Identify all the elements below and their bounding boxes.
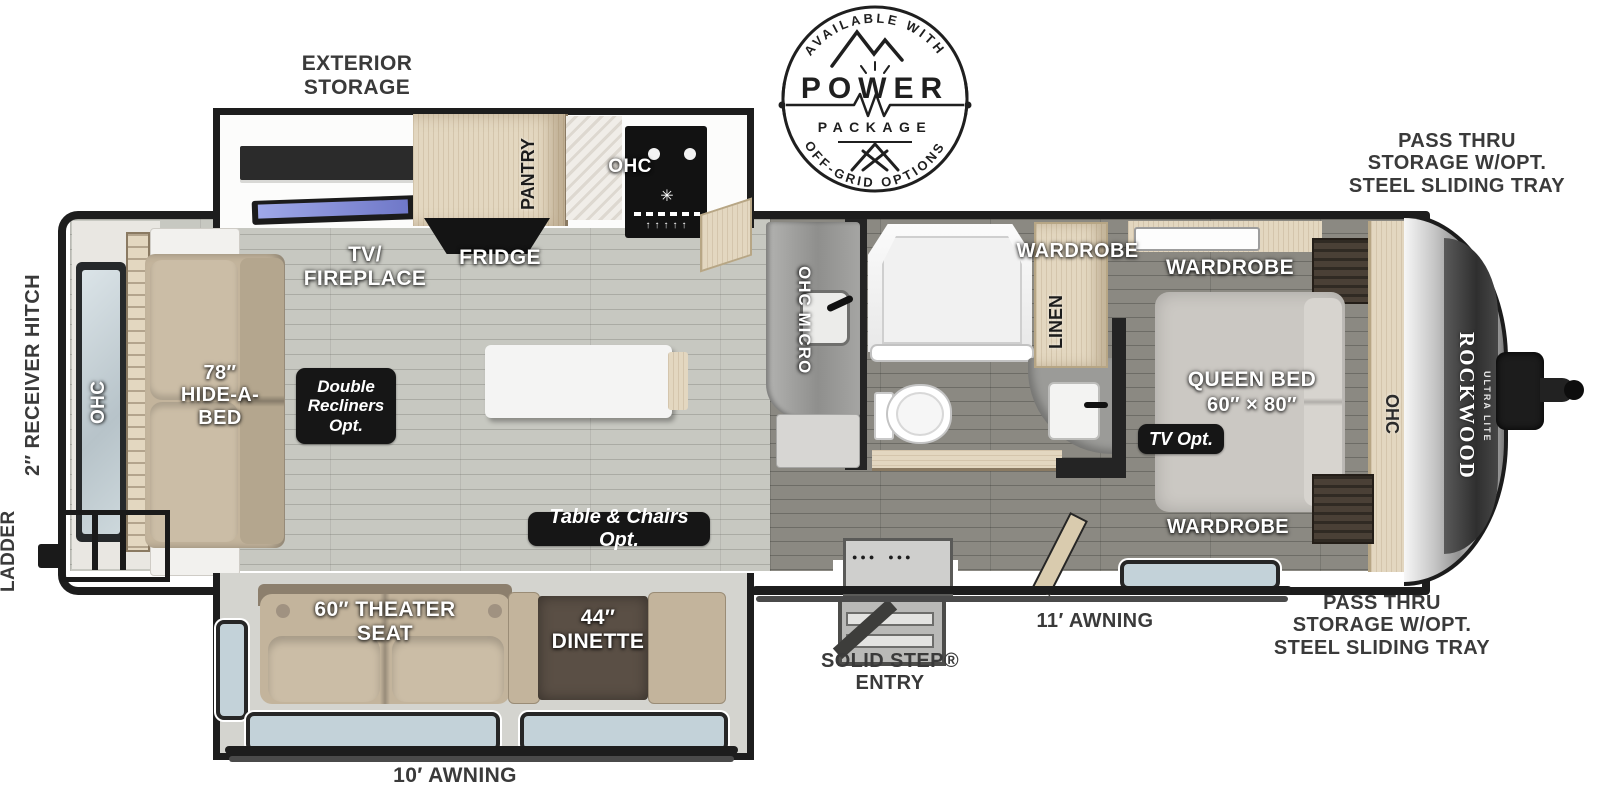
stove-burner-star: ✳ (652, 186, 682, 206)
linen-label: LINEN (1046, 276, 1072, 368)
ladder-rung-1 (92, 512, 98, 570)
bedroom-skylight (1134, 227, 1260, 251)
pass-thru-bottom-label: PASS THRU STORAGE W/OPT. STEEL SLIDING T… (1262, 592, 1502, 659)
entry-tread-dots: ●●● ●●● (852, 552, 938, 562)
rv-floorplan: ✳ ↑↑↑↑↑ ●●● ●●● (0, 0, 1600, 798)
theater-cupholder-1 (276, 604, 290, 618)
power-package-badge: AVAILABLE WITH OFF-GRID OPTIONS POWER PA… (768, 2, 982, 194)
kitchen-lower-cabinet (776, 414, 860, 468)
queen-bed-label: QUEEN BED (1163, 368, 1341, 392)
theater-cushion-left (268, 636, 380, 702)
awning-10-bar (225, 746, 738, 754)
awning-11-label: 11′ AWNING (1010, 610, 1180, 632)
ohc-micro-label: OHC MICRO (786, 240, 814, 400)
tv-opt-badge: TV Opt. (1138, 424, 1224, 454)
shower-door (870, 344, 1034, 362)
theater-cushion-right (392, 636, 504, 702)
slide-side-window (216, 620, 248, 720)
wardrobe-bed-label: WARDROBE (1150, 256, 1310, 280)
stove-knob-2 (684, 148, 696, 160)
ohc-kitchen-label: OHC (600, 156, 660, 177)
solid-step-label: SOLID STEP® ENTRY (798, 650, 982, 695)
bath-shelf (872, 450, 1062, 471)
bath-faucet (1084, 402, 1108, 408)
awning-11-bar (752, 586, 1292, 594)
dinette-bench-right (648, 592, 726, 704)
shower-pan (882, 236, 1022, 344)
brand-name: ROCKWOOD (1448, 308, 1478, 504)
stove-vents: ↑↑↑↑↑ (632, 220, 704, 236)
exterior-storage-label: EXTERIOR STORAGE (272, 52, 442, 99)
stove-grate (634, 212, 700, 216)
ohc-bed-label: OHC (1376, 378, 1402, 450)
pantry-cabinet (413, 114, 568, 226)
table-chairs-badge: Table & Chairs Opt. (528, 512, 710, 546)
mountains-icon (832, 32, 902, 66)
rear-bumper (38, 544, 62, 568)
wardrobe-bath-label: WARDROBE (1005, 240, 1150, 262)
island-end-panel (668, 352, 688, 410)
queen-bed-size-label: 60″ × 80″ (1163, 394, 1341, 416)
badge-package-text: PACKAGE (818, 119, 932, 135)
ladder-label: LADDER (0, 496, 24, 606)
bedroom-tv-stand (1112, 318, 1126, 478)
awning-10-bar2 (229, 756, 734, 762)
nightstand-bottom (1312, 474, 1374, 544)
bath-sink (1048, 382, 1100, 440)
pantry-label: PANTRY (518, 126, 544, 222)
ladder-icon (60, 510, 170, 582)
hitch-knob (1564, 380, 1584, 400)
dinette-label: 44″ DINETTE (538, 606, 658, 653)
bedroom-tv-base (1056, 458, 1126, 478)
awning-10-label: 10′ AWNING (370, 764, 540, 788)
theater-cupholder-2 (488, 604, 502, 618)
tongue-jack (1496, 352, 1544, 430)
theater-seat-label: 60″ THEATER SEAT (300, 598, 470, 645)
fridge-label: FRIDGE (440, 246, 560, 270)
receiver-hitch-label: 2″ RECEIVER HITCH (22, 252, 52, 498)
tv-fireplace-label: TV/ FIREPLACE (290, 243, 440, 290)
dinette-bench-left (508, 592, 540, 704)
awning-11-bar2 (756, 596, 1288, 602)
wardrobe-front-label: WARDROBE (1148, 516, 1308, 538)
brand-sub: ULTRA LITE (1476, 352, 1492, 462)
tent-icon (852, 144, 898, 170)
ohc-rear-label: OHC (88, 360, 114, 444)
kitchen-island (485, 345, 672, 418)
pass-thru-top-label: PASS THRU STORAGE W/OPT. STEEL SLIDING T… (1337, 130, 1577, 197)
toilet-seat (896, 392, 944, 436)
double-recliners-badge: Double Recliners Opt. (296, 368, 396, 444)
hide-a-bed-label: 78″ HIDE-A- BED (150, 362, 290, 429)
ladder-rung-2 (120, 512, 126, 570)
